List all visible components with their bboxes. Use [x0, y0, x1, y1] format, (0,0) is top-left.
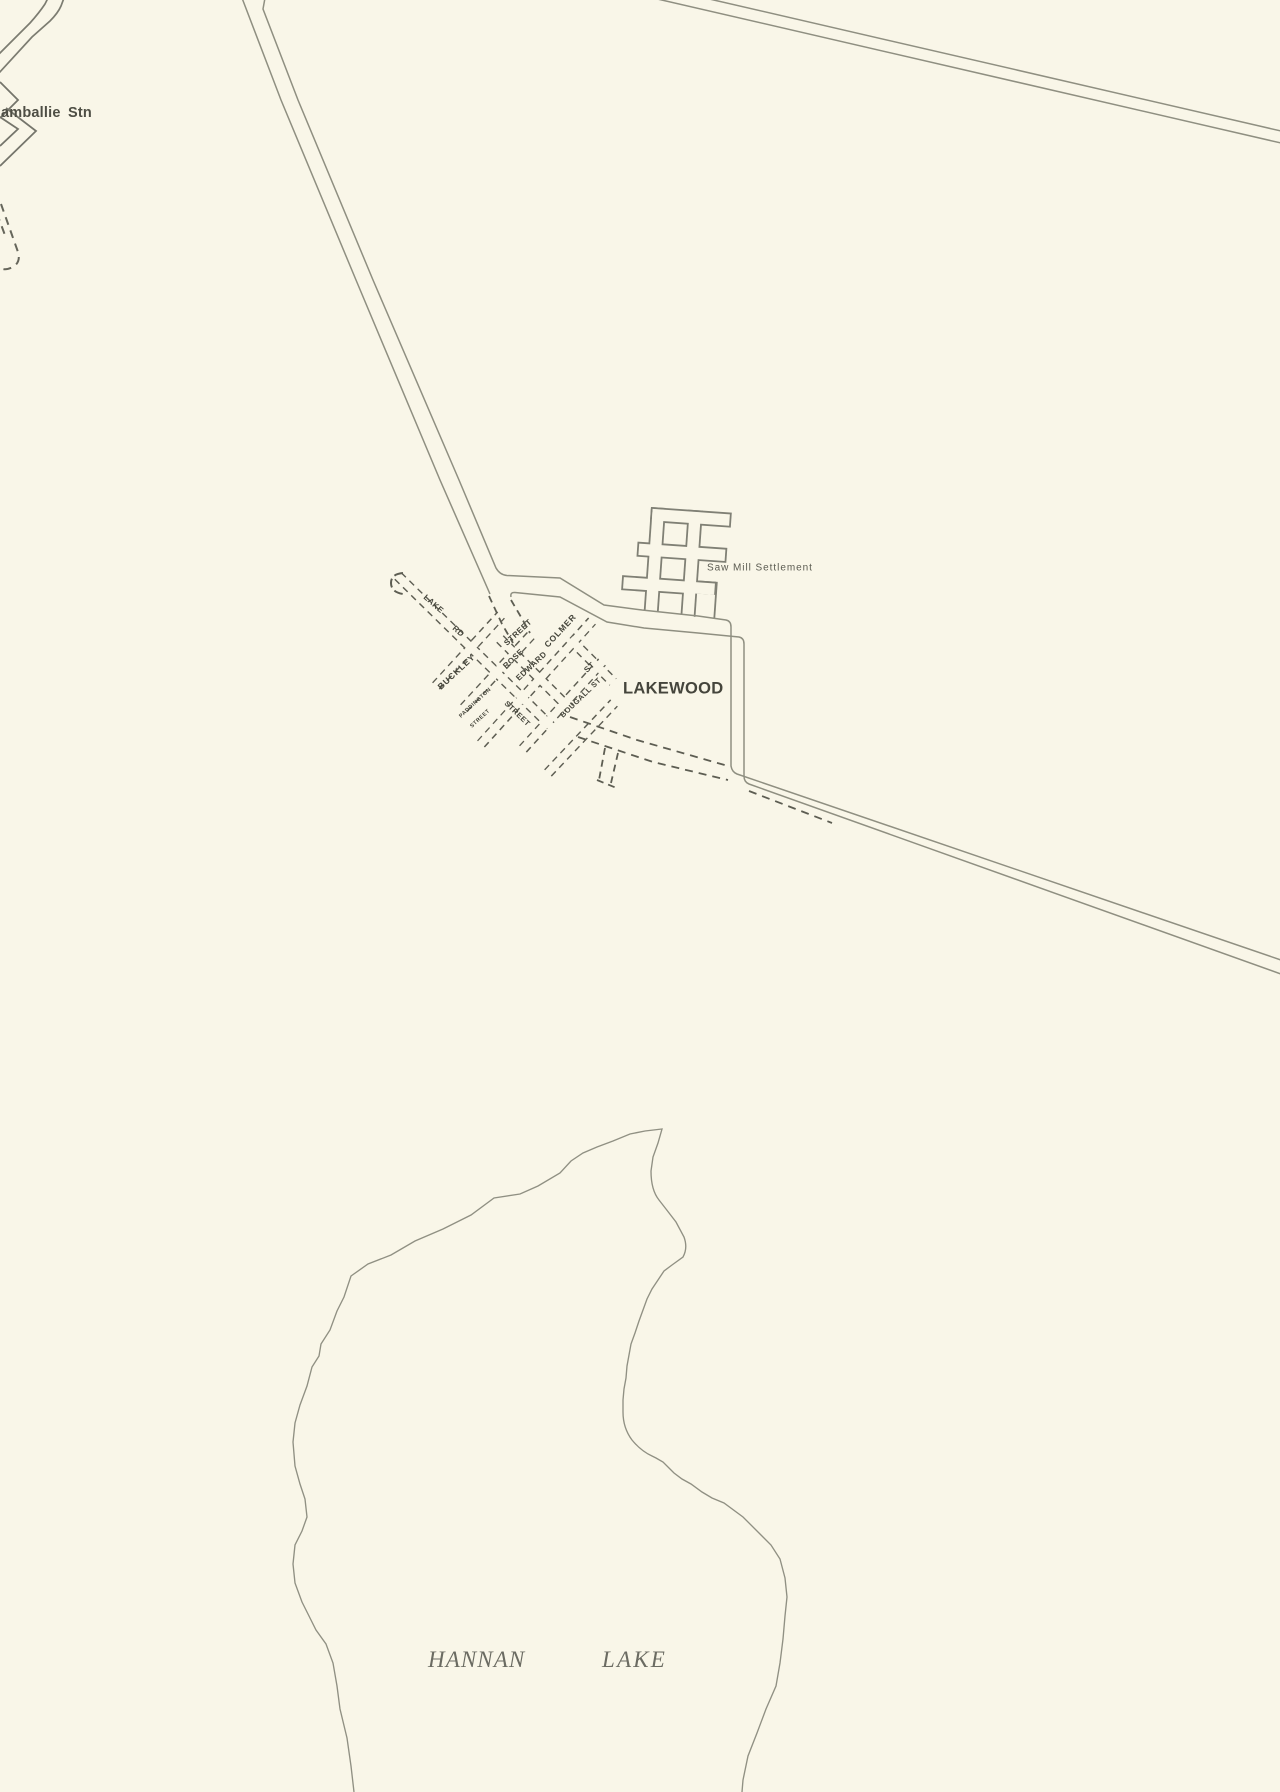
svg-text:amballie: amballie: [1, 105, 61, 121]
svg-text:LAKE: LAKE: [601, 1647, 667, 1672]
svg-text:Saw Mill Settlement: Saw Mill Settlement: [707, 563, 813, 574]
svg-text:HANNAN: HANNAN: [427, 1647, 526, 1672]
svg-text:LAKEWOOD: LAKEWOOD: [623, 680, 723, 698]
svg-text:Stn: Stn: [68, 105, 92, 121]
